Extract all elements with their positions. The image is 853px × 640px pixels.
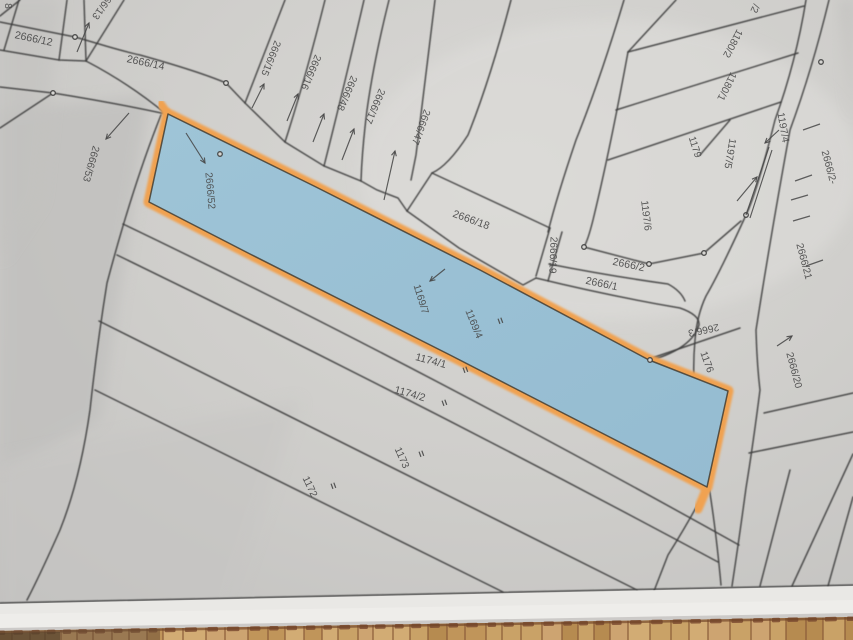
svg-text:2666/19: 2666/19 <box>546 236 558 274</box>
svg-text:8: 8 <box>2 3 13 9</box>
